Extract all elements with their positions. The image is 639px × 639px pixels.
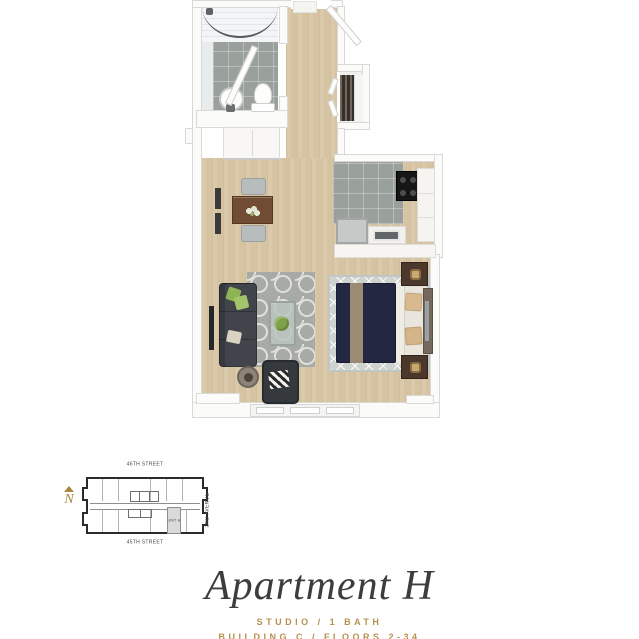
closet-wardrobe-clothes <box>340 75 354 121</box>
closet-side-panel <box>354 75 363 121</box>
kitchen-floor <box>333 162 403 224</box>
lamp <box>410 362 421 373</box>
unit-divider <box>102 479 103 501</box>
bed-pillow-tan-2 <box>404 326 422 345</box>
service-core <box>128 509 152 518</box>
service-room <box>141 510 152 517</box>
subtitle-line-1: STUDIO / 1 BATH <box>0 617 639 627</box>
bed-pillow-tan-1 <box>404 292 422 311</box>
footprint-bump-left-2 <box>82 512 88 526</box>
unit-h-label: UNIT H <box>165 519 182 522</box>
kitchen-sink <box>373 230 400 241</box>
linen-closet <box>223 127 280 160</box>
hallway-floor <box>286 4 337 160</box>
linen-closet-door-seam <box>252 130 253 156</box>
elevator-core <box>130 491 159 502</box>
north-label: N <box>58 492 80 508</box>
wall-left <box>192 0 202 412</box>
unit-divider <box>102 510 103 532</box>
wall-notch-bottom-right <box>406 395 434 404</box>
apartment-floorplan-page: 46TH STREET N UNIT H <box>0 0 639 639</box>
elevator-cab <box>140 492 149 501</box>
wall-left-bump <box>185 128 193 144</box>
tv <box>209 306 214 350</box>
bed-blanket-runner <box>350 283 363 363</box>
bathroom-vanity-strip <box>202 42 213 112</box>
wall-kitchen-right <box>434 154 443 258</box>
side-table <box>237 366 259 388</box>
wall-bathroom-right-upper <box>279 6 288 44</box>
nightstand-south <box>401 355 428 379</box>
wall-closet-right <box>362 64 370 128</box>
dining-chair-south <box>241 225 266 242</box>
footprint-bump-left-1 <box>82 487 88 501</box>
plant <box>274 316 289 331</box>
bed-duvet <box>336 283 396 363</box>
building-footprint: UNIT H <box>86 477 204 534</box>
entry-mat <box>293 1 317 13</box>
kitchen-counter <box>334 244 436 258</box>
throw-pillow-cream <box>226 330 242 345</box>
wall-bathroom-bottom <box>196 110 288 128</box>
shower-head-icon <box>206 8 213 15</box>
wall-kitchen-top <box>334 154 442 162</box>
service-room <box>129 510 141 517</box>
window-sill-1 <box>256 407 284 414</box>
unit-divider <box>186 510 187 532</box>
unit-divider <box>118 510 119 532</box>
refrigerator-cabinet <box>417 168 435 242</box>
unit-h-highlight: UNIT H <box>167 507 181 534</box>
stove <box>396 171 418 201</box>
unit-divider <box>182 479 183 501</box>
cat-figure <box>244 373 253 382</box>
window-sill-2 <box>290 407 320 414</box>
elevator-cab <box>150 492 158 501</box>
unit-divider <box>166 479 167 501</box>
toilet-tank <box>251 103 275 112</box>
flower-centerpiece <box>245 205 261 217</box>
subtitle-line-2: BUILDING C / FLOORS 2-34 <box>0 632 639 639</box>
striped-pillow <box>268 370 290 390</box>
avenue-label: 2ND AVENUE <box>205 487 211 527</box>
wall-art-upper <box>215 188 221 209</box>
unit-divider <box>118 479 119 501</box>
lamp <box>410 269 421 280</box>
dishwasher <box>336 218 368 244</box>
wall-art-lower <box>215 213 221 234</box>
dining-chair-north <box>241 178 266 195</box>
street-label-bottom: 45TH STREET <box>88 540 202 545</box>
page-title: Apartment H <box>0 565 639 607</box>
dresser <box>423 288 433 354</box>
street-label-top: 46TH STREET <box>88 462 202 467</box>
wall-notch-bottom-left <box>196 393 240 404</box>
window-sill-3 <box>326 407 354 414</box>
dining-table <box>232 196 273 224</box>
nightstand-north <box>401 262 428 286</box>
elevator-cab <box>131 492 140 501</box>
